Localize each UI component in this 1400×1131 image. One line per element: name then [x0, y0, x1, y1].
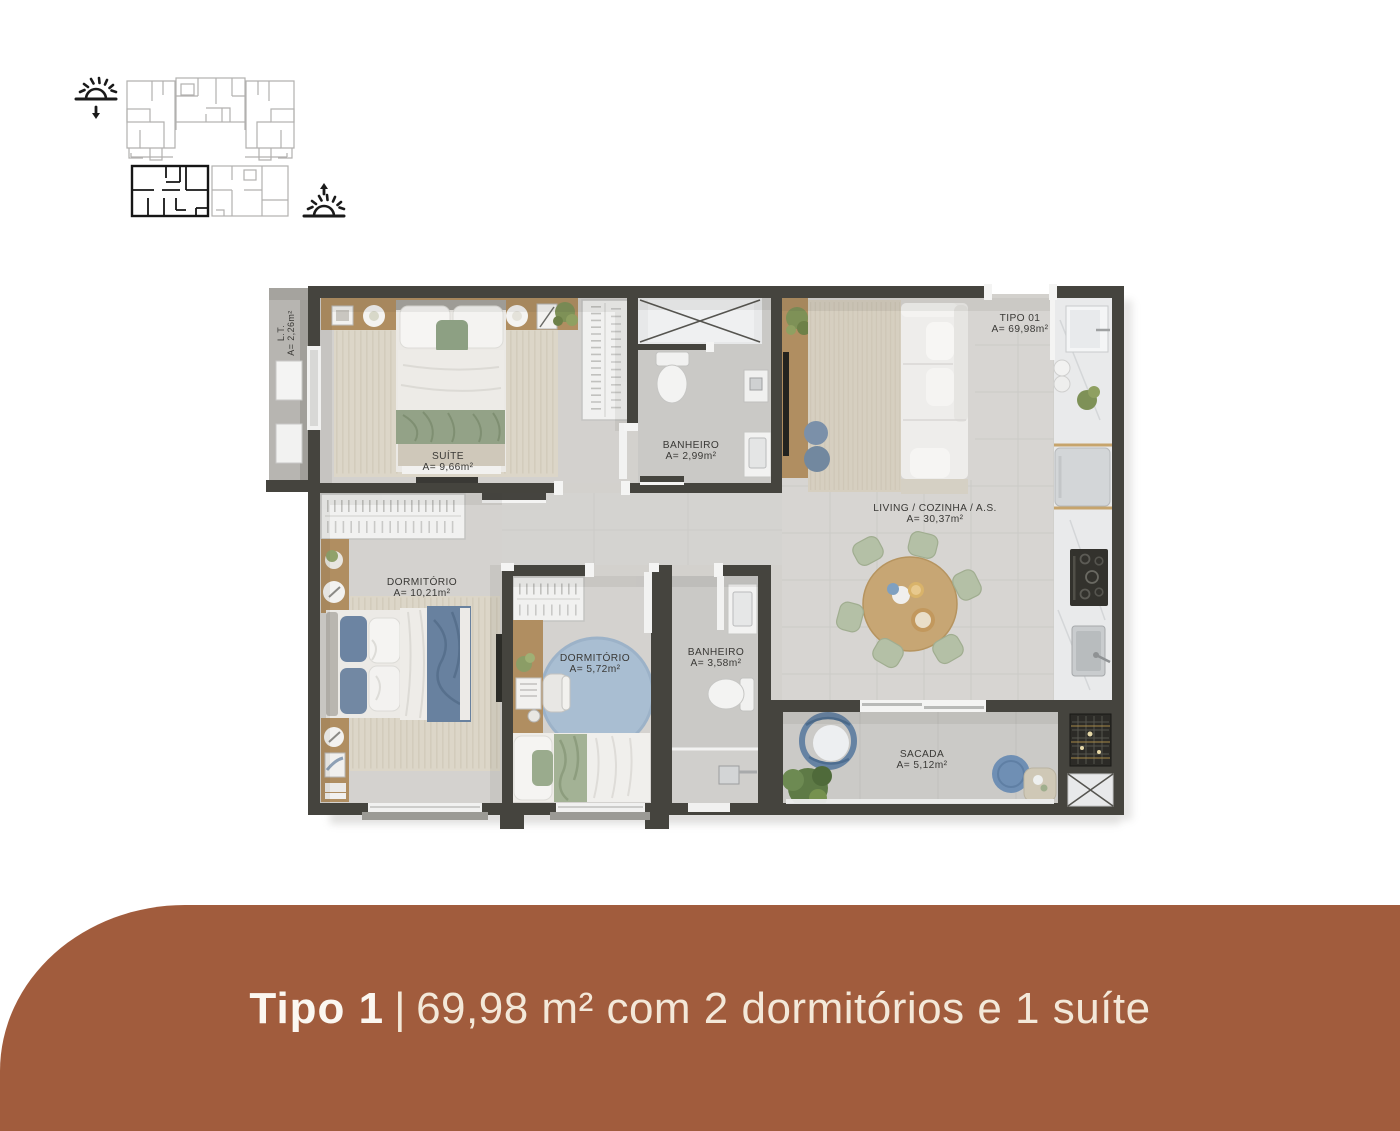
svg-text:A= 2,26m²: A= 2,26m² [286, 310, 296, 355]
svg-text:DORMITÓRIO: DORMITÓRIO [387, 575, 457, 588]
svg-text:A= 30,37m²: A= 30,37m² [907, 514, 964, 525]
svg-text:L.T.: L.T. [276, 325, 286, 341]
svg-text:SUÍTE: SUÍTE [432, 449, 464, 462]
svg-text:A= 3,58m²: A= 3,58m² [691, 658, 742, 669]
svg-text:BANHEIRO: BANHEIRO [663, 440, 719, 451]
svg-text:A= 9,66m²: A= 9,66m² [423, 462, 474, 473]
svg-text:LIVING / COZINHA / A.S.: LIVING / COZINHA / A.S. [873, 503, 997, 514]
svg-text:A= 10,21m²: A= 10,21m² [394, 588, 451, 599]
svg-text:A= 5,72m²: A= 5,72m² [570, 664, 621, 675]
svg-text:SACADA: SACADA [900, 749, 944, 760]
svg-text:A= 5,12m²: A= 5,12m² [897, 760, 948, 771]
svg-text:BANHEIRO: BANHEIRO [688, 647, 744, 658]
svg-text:A= 2,99m²: A= 2,99m² [666, 451, 717, 462]
svg-text:DORMITÓRIO: DORMITÓRIO [560, 651, 630, 664]
svg-text:A= 69,98m²: A= 69,98m² [992, 324, 1049, 335]
svg-text:TIPO 01: TIPO 01 [1000, 313, 1041, 324]
